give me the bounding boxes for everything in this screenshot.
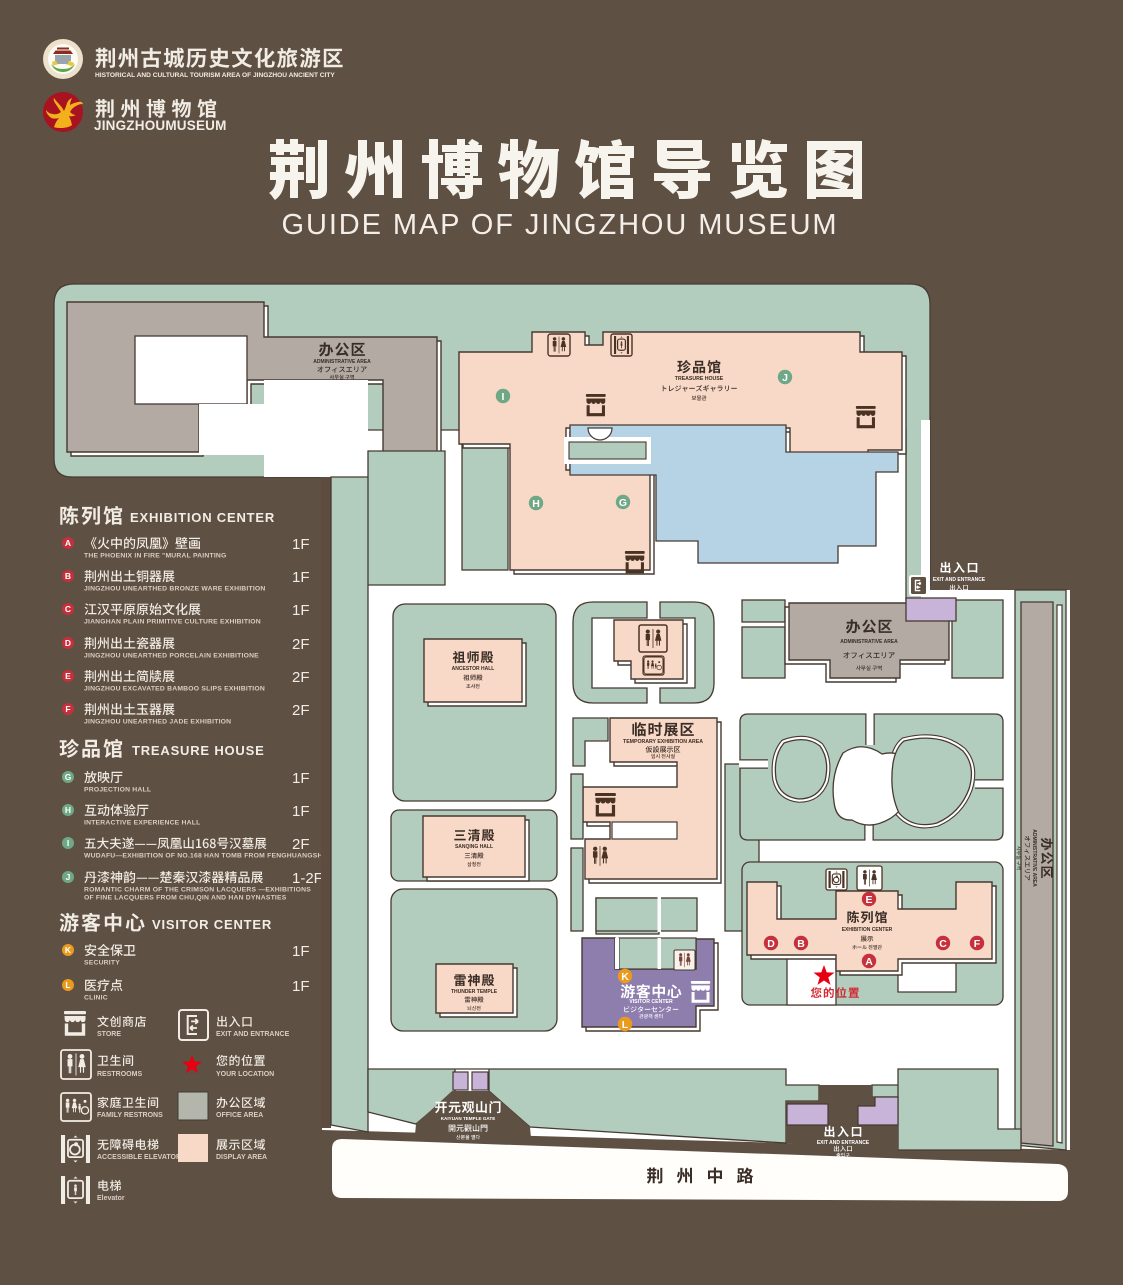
svg-text:F: F <box>65 704 70 714</box>
svg-text:L: L <box>622 1019 629 1031</box>
svg-text:B: B <box>797 938 805 950</box>
svg-text:1F: 1F <box>292 536 310 553</box>
svg-text:L: L <box>65 980 70 990</box>
svg-text:G: G <box>619 497 627 509</box>
svg-text:K: K <box>621 971 629 983</box>
svg-text:J: J <box>782 372 788 384</box>
svg-text:RESTROOMS: RESTROOMS <box>97 1071 142 1078</box>
svg-text:INTERACTIVE EXPERIENCE HALL: INTERACTIVE EXPERIENCE HALL <box>84 820 200 827</box>
svg-text:2F: 2F <box>292 669 310 686</box>
svg-text:OF FINE LACQUERS FROM CHU,QIN: OF FINE LACQUERS FROM CHU,QIN AND HAN DY… <box>84 895 287 902</box>
svg-text:F: F <box>974 938 981 950</box>
svg-text:1F: 1F <box>292 770 310 787</box>
svg-text:PROJECTION HALL: PROJECTION HALL <box>84 787 151 794</box>
svg-text:ADMINISTRATIVE AREA: ADMINISTRATIVE AREA <box>840 639 898 645</box>
svg-text:WUDAFU—EXHIBITION OF NO.168 HA: WUDAFU—EXHIBITION OF NO.168 HAN TOMB FRO… <box>84 853 333 860</box>
svg-text:HISTORICAL AND CULTURAL TOURIS: HISTORICAL AND CULTURAL TOURISM AREA OF … <box>95 72 335 79</box>
svg-text:E: E <box>865 894 872 906</box>
svg-text:I: I <box>502 391 505 403</box>
svg-text:JINGZHOUMUSEUM: JINGZHOUMUSEUM <box>94 118 227 133</box>
svg-text:E: E <box>65 671 71 681</box>
svg-text:D: D <box>767 938 775 950</box>
svg-text:K: K <box>65 945 72 955</box>
svg-text:DISPLAY AREA: DISPLAY AREA <box>216 1154 267 1161</box>
svg-text:CLINIC: CLINIC <box>84 995 108 1002</box>
svg-text:FAMILY RESTRONS: FAMILY RESTRONS <box>97 1112 163 1119</box>
svg-text:H: H <box>65 805 71 815</box>
svg-text:ADMINISTRATIVE AREA: ADMINISTRATIVE AREA <box>313 359 371 365</box>
svg-text:OFFICE AREA: OFFICE AREA <box>216 1112 263 1119</box>
svg-text:B: B <box>65 571 71 581</box>
svg-text:ACCESSIBLE ELEVATOR: ACCESSIBLE ELEVATOR <box>97 1154 181 1161</box>
svg-text:1F: 1F <box>292 978 310 995</box>
svg-text:2F: 2F <box>292 636 310 653</box>
svg-text:TREASURE HOUSE: TREASURE HOUSE <box>675 376 724 382</box>
svg-text:JINGZHOU EXCAVATED BAMBOO SLIP: JINGZHOU EXCAVATED BAMBOO SLIPS EXHIBITI… <box>84 686 265 693</box>
svg-text:C: C <box>939 938 947 950</box>
svg-text:STORE: STORE <box>97 1031 121 1038</box>
svg-text:JINGZHOU UNEARTHED JADE EXHIBI: JINGZHOU UNEARTHED JADE EXHIBITION <box>84 719 231 726</box>
svg-text:THE PHOENIX IN FIRE "MURAL PAI: THE PHOENIX IN FIRE "MURAL PAINTING <box>84 553 227 560</box>
svg-text:TREASURE HOUSE: TREASURE HOUSE <box>132 743 265 758</box>
svg-text:ADMINISTRATIVE AREA: ADMINISTRATIVE AREA <box>1031 829 1037 887</box>
svg-text:JINGZHOU UNEARTHED PORCELAIN E: JINGZHOU UNEARTHED PORCELAIN EXHIBITIONE <box>84 653 259 660</box>
svg-text:EXIT AND ENTRANCE: EXIT AND ENTRANCE <box>216 1031 290 1038</box>
svg-text:1F: 1F <box>292 569 310 586</box>
svg-text:I: I <box>67 838 69 848</box>
svg-text:G: G <box>65 772 72 782</box>
svg-text:SANQING HALL: SANQING HALL <box>455 844 493 850</box>
svg-text:EXHIBITION CENTER: EXHIBITION CENTER <box>130 510 275 525</box>
svg-text:EXIT AND ENTRANCE: EXIT AND ENTRANCE <box>817 1140 870 1146</box>
svg-text:KAIYUAN TEMPLE GATE: KAIYUAN TEMPLE GATE <box>441 1116 496 1121</box>
svg-text:YOUR LOCATION: YOUR LOCATION <box>216 1071 274 1078</box>
svg-text:ROMANTIC CHARM OF THE CRIMSON: ROMANTIC CHARM OF THE CRIMSON LACQUERS —… <box>84 887 311 894</box>
svg-text:VISITOR CENTER: VISITOR CENTER <box>629 999 673 1005</box>
svg-text:H: H <box>532 498 540 510</box>
svg-text:1-2F: 1-2F <box>292 870 323 887</box>
svg-text:1F: 1F <box>292 602 310 619</box>
svg-text:2F: 2F <box>292 702 310 719</box>
svg-text:Elevator: Elevator <box>97 1195 125 1202</box>
svg-text:ANCESTOR HALL: ANCESTOR HALL <box>452 666 495 672</box>
svg-text:1F: 1F <box>292 943 310 960</box>
svg-text:C: C <box>65 604 71 614</box>
svg-text:EXHIBITION CENTER: EXHIBITION CENTER <box>842 927 893 933</box>
svg-text:TEMPORARY EXHIBITION AREA: TEMPORARY EXHIBITION AREA <box>623 739 703 745</box>
svg-text:D: D <box>65 638 71 648</box>
svg-text:THUNDER TEMPLE: THUNDER TEMPLE <box>451 989 498 995</box>
svg-text:SECURITY: SECURITY <box>84 960 120 967</box>
svg-text:A: A <box>865 956 873 968</box>
svg-text:J: J <box>66 872 71 882</box>
svg-text:EXIT AND ENTRANCE: EXIT AND ENTRANCE <box>933 577 986 583</box>
svg-text:GUIDE MAP OF JINGZHOU MUSEUM: GUIDE MAP OF JINGZHOU MUSEUM <box>282 209 839 241</box>
svg-text:2F: 2F <box>292 836 310 853</box>
svg-text:1F: 1F <box>292 803 310 820</box>
svg-text:VISITOR CENTER: VISITOR CENTER <box>152 917 272 932</box>
svg-text:A: A <box>65 538 71 548</box>
svg-text:JINGZHOU UNEARTHED BRONZE WARE: JINGZHOU UNEARTHED BRONZE WARE EXHIBITIO… <box>84 586 266 593</box>
svg-text:JIANGHAN PLAIN PRIMITIVE CULTU: JIANGHAN PLAIN PRIMITIVE CULTURE EXHIBIT… <box>84 619 261 626</box>
